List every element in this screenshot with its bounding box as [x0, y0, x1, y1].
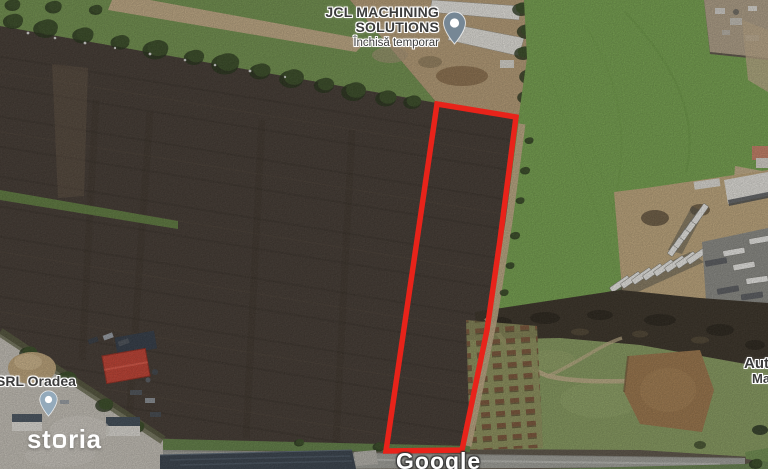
storia-o-glyph — [53, 434, 66, 448]
map-pin-icon[interactable] — [39, 389, 58, 418]
poi-label-right-edge: Aut Ma — [744, 356, 768, 385]
poi-label-srl-oradea: SRL Oradea — [0, 373, 76, 389]
business-status: Închisă temporar — [325, 37, 439, 49]
business-name: JCL MACHINING SOLUTIONS — [325, 5, 439, 35]
storia-watermark: stria — [27, 424, 101, 455]
satellite-imagery — [0, 0, 768, 469]
map-pin-icon[interactable] — [442, 11, 467, 45]
google-logo[interactable]: Google — [396, 448, 481, 469]
map-canvas[interactable]: JCL MACHINING SOLUTIONS Închisă temporar… — [0, 0, 768, 469]
grain-overlay-light — [0, 0, 768, 469]
poi-label-jcl-machining[interactable]: JCL MACHINING SOLUTIONS Închisă temporar — [325, 5, 439, 49]
